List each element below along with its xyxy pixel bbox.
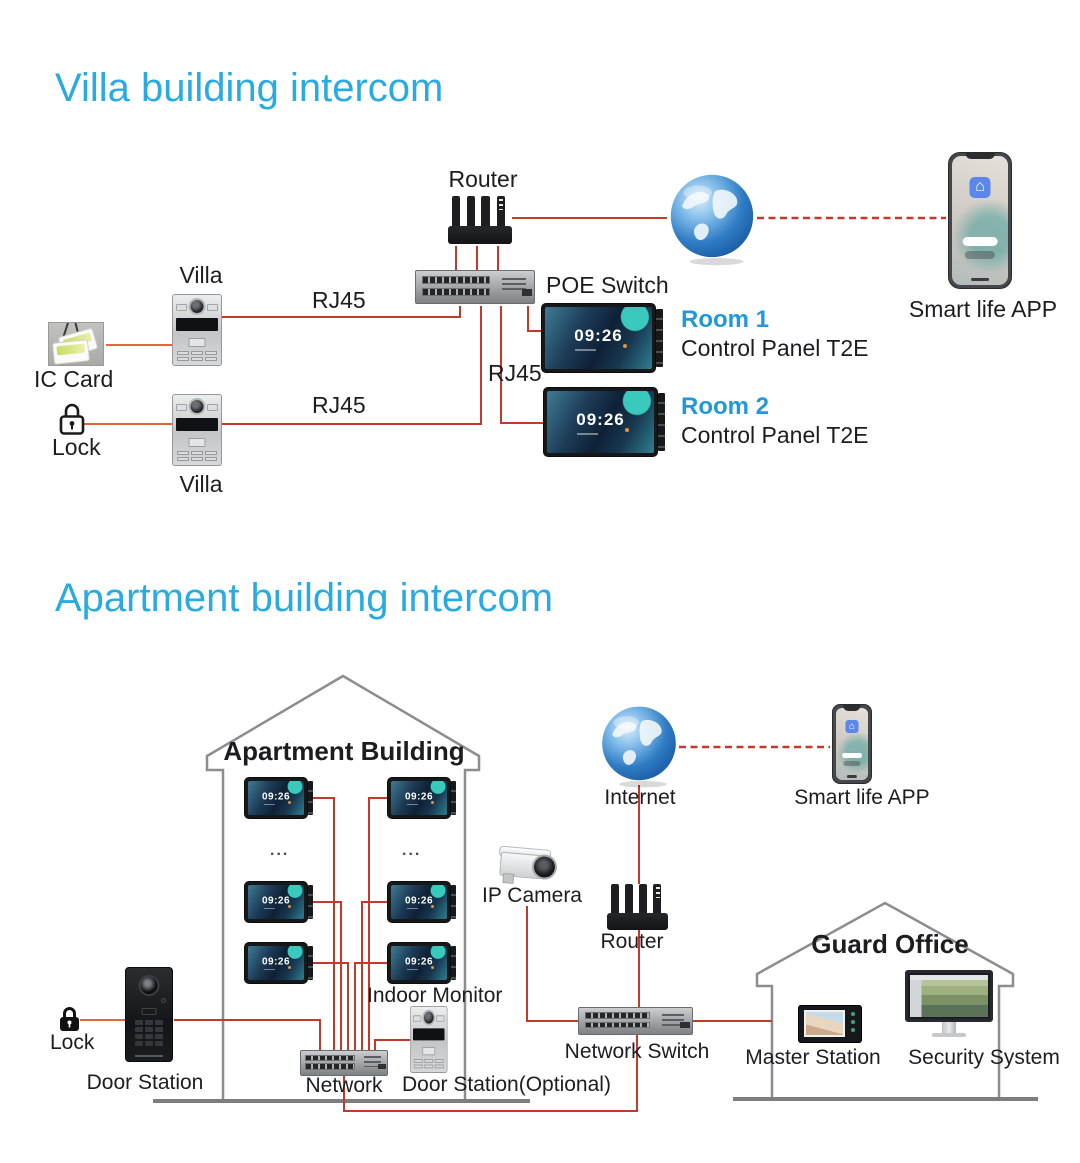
control-panel-room2: 09:26 bbox=[544, 388, 657, 456]
camera-icon bbox=[191, 300, 204, 313]
indoor-monitor: 09:26 bbox=[245, 943, 307, 983]
smartphone: ⌂ bbox=[832, 704, 872, 784]
monitor-clock: 09:26 bbox=[405, 895, 433, 906]
monitor-clock: 09:26 bbox=[262, 895, 290, 906]
ic-card-label: IC Card bbox=[34, 366, 113, 393]
security-system-label: Security System bbox=[908, 1046, 1060, 1070]
indoor-monitor: 09:26 bbox=[388, 882, 450, 922]
line-poe-room1 bbox=[528, 306, 542, 331]
villa-top-label: Villa bbox=[179, 262, 222, 289]
smart-life-app-icon: ⌂ bbox=[846, 720, 859, 733]
villa-door-station-1 bbox=[172, 294, 222, 366]
rj45-label-top: RJ45 bbox=[312, 287, 366, 314]
control-panel-room1: 09:26 bbox=[542, 304, 655, 372]
door-station-device bbox=[125, 967, 173, 1062]
internet-label: Internet bbox=[604, 786, 675, 810]
security-system-device bbox=[905, 970, 993, 1037]
room1-device-label: Control Panel T2E bbox=[681, 335, 869, 362]
indoor-monitor: 09:26 bbox=[245, 778, 307, 818]
rj45-label-bottom: RJ45 bbox=[312, 392, 366, 419]
villa-section-title: Villa building intercom bbox=[55, 66, 443, 111]
master-station-label: Master Station bbox=[745, 1046, 880, 1070]
master-station-device bbox=[798, 1005, 862, 1043]
villa-bottom-label: Villa bbox=[179, 471, 222, 498]
network-switch-label: Network Switch bbox=[565, 1040, 710, 1064]
smart-life-app-label: Smart life APP bbox=[909, 296, 1057, 323]
room1-label: Room 1 bbox=[681, 306, 769, 334]
line-monitor-1b bbox=[369, 798, 388, 1050]
smart-life-app-label: Smart life APP bbox=[794, 786, 929, 810]
network-switch-device bbox=[578, 1007, 693, 1035]
panel-side-buttons bbox=[656, 309, 663, 366]
line-monitor-2b bbox=[362, 902, 388, 1050]
villa-door-station-2 bbox=[172, 394, 222, 466]
internet-globe-icon bbox=[667, 173, 757, 272]
ic-card-image bbox=[48, 322, 104, 366]
line-doorstation-network bbox=[174, 1020, 320, 1050]
network-switch-building bbox=[300, 1050, 388, 1076]
poe-switch-label: POE Switch bbox=[546, 272, 669, 299]
router-label: Router bbox=[600, 930, 663, 954]
router-device bbox=[448, 196, 512, 244]
indoor-monitor: 09:26 bbox=[245, 882, 307, 922]
room2-device-label: Control Panel T2E bbox=[681, 422, 869, 449]
network-label: Network bbox=[305, 1074, 382, 1098]
ip-camera-device bbox=[496, 844, 557, 889]
ellipsis-left: ... bbox=[270, 842, 289, 860]
surveillance-screen bbox=[910, 975, 988, 1017]
monitor-clock: 09:26 bbox=[262, 956, 290, 967]
ellipsis-right: ... bbox=[402, 842, 421, 860]
apartment-section-title: Apartment building intercom bbox=[55, 576, 553, 621]
camera-icon bbox=[141, 977, 158, 994]
panel-side-buttons bbox=[658, 393, 665, 450]
poe-switch-device bbox=[415, 270, 535, 304]
lines-router-poe bbox=[456, 246, 498, 270]
monitor-clock: 09:26 bbox=[405, 791, 433, 802]
indoor-monitor: 09:26 bbox=[388, 778, 450, 818]
camera-icon bbox=[191, 400, 204, 413]
line-monitor-2a bbox=[311, 902, 341, 1050]
line-monitor-1a bbox=[311, 798, 334, 1050]
line-monitor-3a bbox=[311, 963, 348, 1050]
indoor-monitor: 09:26 bbox=[388, 943, 450, 983]
smartphone: ⌂ bbox=[948, 152, 1012, 289]
indoor-monitor-label: Indoor Monitor bbox=[367, 984, 502, 1008]
apartment-building-label: Apartment Building bbox=[223, 736, 464, 767]
router-led-icon bbox=[656, 887, 660, 898]
router-device bbox=[607, 884, 668, 930]
door-station-optional bbox=[410, 1006, 448, 1073]
router-led-icon bbox=[499, 199, 503, 210]
monitor-clock: 09:26 bbox=[262, 791, 290, 802]
panel-clock: 09:26 bbox=[574, 326, 622, 346]
lock-label: Lock bbox=[50, 1031, 94, 1055]
internet-globe-icon bbox=[599, 705, 679, 794]
phone-notch bbox=[843, 705, 860, 711]
phone-notch bbox=[966, 153, 995, 159]
line-ipcamera-switch bbox=[527, 906, 578, 1021]
smart-life-app-icon: ⌂ bbox=[970, 177, 991, 198]
ip-camera-label: IP Camera bbox=[482, 884, 582, 908]
master-station-screen bbox=[804, 1010, 845, 1037]
line-optional-doorstation bbox=[375, 1040, 412, 1050]
intercom-topology-diagram: Villa building intercom Router POE Switc… bbox=[0, 0, 1080, 1163]
door-station-optional-label: Door Station(Optional) bbox=[402, 1073, 611, 1097]
camera-icon bbox=[424, 1012, 434, 1024]
monitor-clock: 09:26 bbox=[405, 956, 433, 967]
rj45-label-mid: RJ45 bbox=[488, 360, 542, 387]
guard-office-label: Guard Office bbox=[811, 929, 968, 960]
room2-label: Room 2 bbox=[681, 393, 769, 421]
router-label: Router bbox=[448, 166, 517, 193]
panel-clock: 09:26 bbox=[576, 410, 624, 430]
lock-label: Lock bbox=[52, 434, 101, 461]
keypad bbox=[135, 1020, 163, 1046]
door-station-label: Door Station bbox=[87, 1071, 204, 1095]
